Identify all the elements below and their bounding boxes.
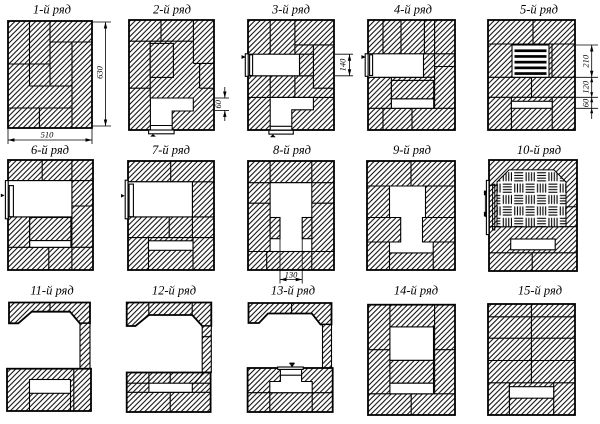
svg-text:130: 130 <box>285 270 299 280</box>
svg-text:10-й ряд: 10-й ряд <box>517 143 561 157</box>
svg-text:2-й ряд: 2-й ряд <box>153 3 191 17</box>
svg-text:6-й ряд: 6-й ряд <box>31 143 69 157</box>
svg-text:120: 120 <box>580 80 590 94</box>
svg-text:13-й ряд: 13-й ряд <box>271 284 315 298</box>
svg-text:12-й ряд: 12-й ряд <box>152 284 196 298</box>
svg-text:14-й ряд: 14-й ряд <box>394 284 438 298</box>
svg-text:60: 60 <box>580 98 590 107</box>
svg-text:510: 510 <box>41 130 55 140</box>
svg-text:60: 60 <box>213 99 223 108</box>
svg-text:5-й ряд: 5-й ряд <box>520 3 558 17</box>
svg-text:3-й ряд: 3-й ряд <box>271 3 310 17</box>
svg-text:630: 630 <box>95 65 105 79</box>
svg-text:1-й ряд: 1-й ряд <box>33 3 71 17</box>
svg-text:15-й ряд: 15-й ряд <box>518 284 562 298</box>
svg-text:11-й ряд: 11-й ряд <box>30 284 73 298</box>
svg-text:7-й ряд: 7-й ряд <box>152 143 190 157</box>
svg-text:9-й ряд: 9-й ряд <box>393 143 431 157</box>
svg-text:8-й ряд: 8-й ряд <box>273 143 311 157</box>
svg-text:210: 210 <box>580 54 590 67</box>
svg-text:140: 140 <box>338 58 348 72</box>
svg-text:4-й ряд: 4-й ряд <box>394 3 432 17</box>
